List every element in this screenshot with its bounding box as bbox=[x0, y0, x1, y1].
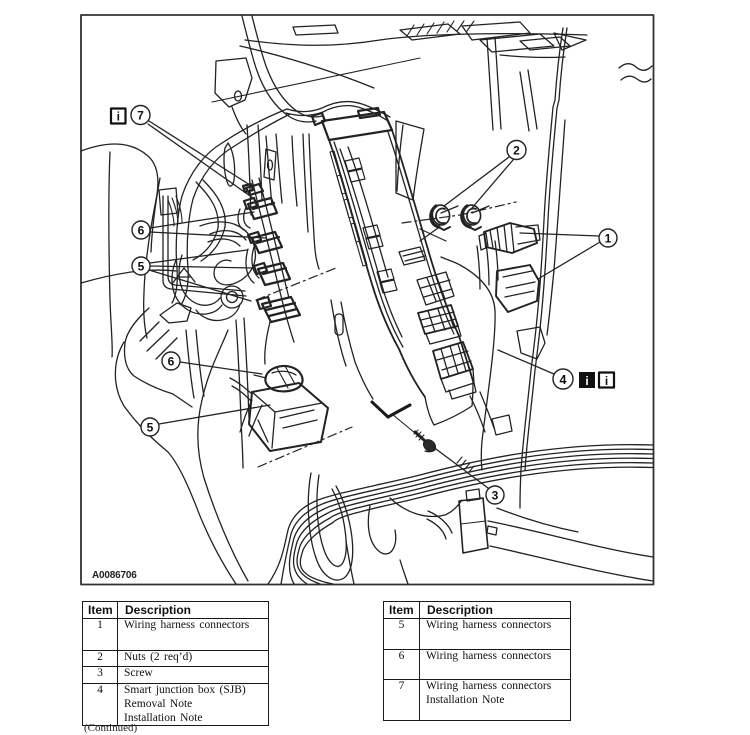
svg-text:2: 2 bbox=[513, 144, 520, 158]
svg-text:5: 5 bbox=[147, 421, 154, 435]
svg-text:7: 7 bbox=[137, 109, 144, 123]
svg-text:5: 5 bbox=[138, 260, 145, 274]
svg-text:6: 6 bbox=[168, 355, 175, 369]
svg-text:6: 6 bbox=[138, 224, 145, 238]
svg-text:i: i bbox=[605, 374, 608, 388]
svg-text:i: i bbox=[117, 110, 120, 124]
svg-text:A0086706: A0086706 bbox=[92, 570, 137, 581]
svg-text:4: 4 bbox=[560, 373, 567, 387]
svg-text:i: i bbox=[585, 374, 588, 388]
svg-text:1: 1 bbox=[605, 232, 612, 246]
svg-text:3: 3 bbox=[492, 489, 499, 503]
